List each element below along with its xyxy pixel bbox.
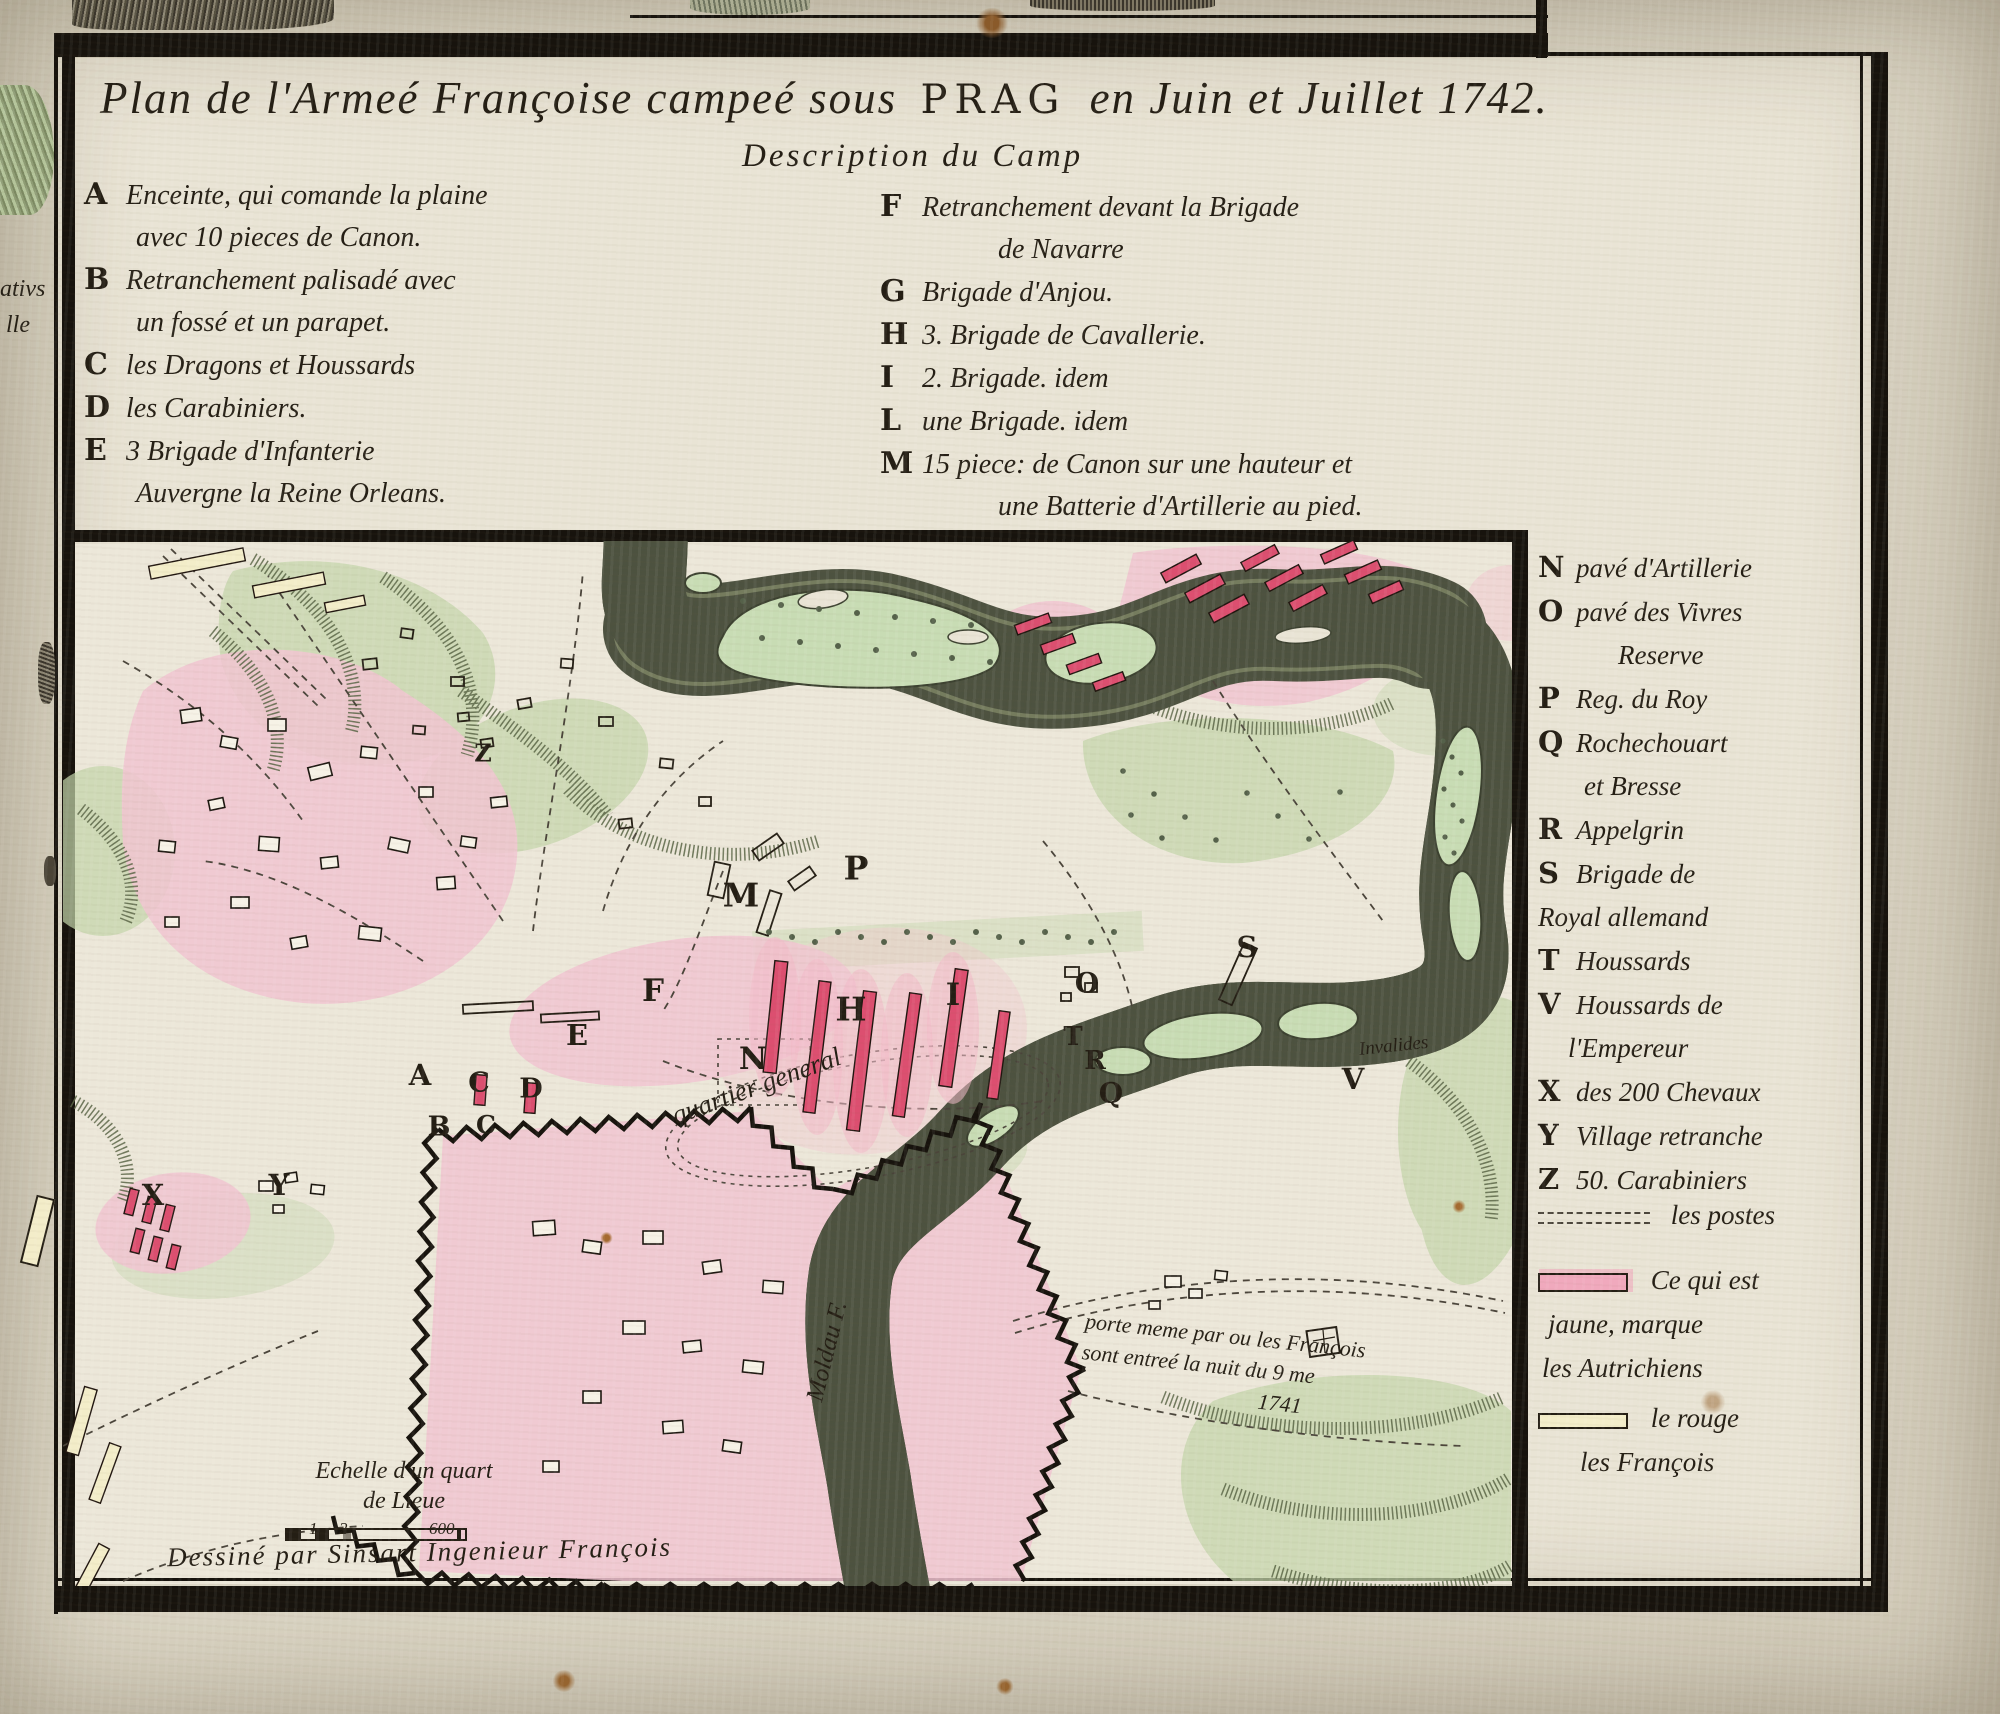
map-marker-S: S (1237, 930, 1258, 964)
map-marker-V: V (1342, 1062, 1365, 1096)
side-legend-entry-X: Xdes 200 Chevaux (1538, 1070, 1878, 1114)
legend-entry-G: GBrigade d'Anjou. (880, 271, 1820, 314)
legend-text: et Bresse (1584, 765, 1878, 808)
map-marker-D: D (519, 1074, 542, 1105)
legend-key: S (1538, 852, 1576, 895)
dashed-line-symbol (1538, 1212, 1650, 1224)
legend-text: une Batterie d'Artillerie au pied. (998, 486, 1820, 528)
legend-key: V (1538, 983, 1576, 1026)
legend-text: Rochechouart (1576, 728, 1727, 758)
french-line: le rouge (1651, 1403, 1739, 1433)
plate-border-left-outer (54, 33, 58, 1614)
legend-text: Houssards (1576, 946, 1691, 976)
austrians-legend: Ce qui est jaune, marque les Autrichiens (1538, 1258, 1759, 1390)
postes-label: les postes (1671, 1200, 1775, 1230)
map-label-invalides: Invalides (1358, 1032, 1430, 1061)
legend-entry-H: H3. Brigade de Cavallerie. (880, 314, 1820, 357)
title-suffix: en Juin et Juillet 1742. (1090, 73, 1549, 123)
legend-column-left: AEnceinte, qui comande la plaineavec 10 … (84, 174, 764, 515)
legend-text: pavé des Vivres (1576, 597, 1742, 627)
legend-key: H (880, 314, 922, 356)
legend-text: une Brigade. idem (922, 406, 1128, 437)
legend-key: R (1538, 808, 1576, 851)
map-marker-B: B (428, 1112, 451, 1143)
map-marker-Q: Q (1099, 1077, 1123, 1110)
legend-key: Q (1538, 721, 1576, 764)
legend-key: N (1538, 546, 1576, 589)
map-marker-I: I (946, 977, 961, 1013)
yellow-bar-symbol (1538, 1413, 1628, 1429)
map-marker-C: C (468, 1068, 490, 1099)
legend-entry-E: E3 Brigade d'InfanterieAuvergne la Reine… (84, 430, 764, 515)
left-margin-text-fragment: ativs (0, 276, 45, 303)
legend-entry-D: Dles Carabiniers. (84, 387, 764, 430)
legend-text: Reg. du Roy (1576, 684, 1707, 714)
map-frame-right (1512, 530, 1528, 1586)
legend-entry-M: M15 piece: de Canon sur une hauteur etun… (880, 443, 1820, 528)
side-legend-entry-T: THoussards (1538, 939, 1878, 983)
map-marker-M: M (723, 876, 760, 915)
pink-bar-symbol (1538, 1273, 1628, 1292)
legend-text: Enceinte, qui comande la plaine (126, 180, 488, 211)
upper-panel-green-fragment (690, 0, 810, 15)
engraved-map-sheet: Plan de l'Armeé Françoise campeé sous Pr… (0, 0, 2000, 1714)
map-marker-E: E (566, 1018, 588, 1052)
map-marker-O: O (1075, 967, 1099, 1000)
legend-key: E (84, 430, 126, 472)
legend-text: Retranchement palisadé avec (126, 265, 456, 296)
french-line: les François (1580, 1440, 1739, 1484)
legend-column-right: FRetranchement devant la Brigadede Navar… (880, 186, 1820, 528)
legend-text: un fossé et un parapet. (136, 302, 764, 344)
legend-text: avec 10 pieces de Canon. (136, 217, 764, 259)
legend-key: P (1538, 677, 1576, 720)
side-legend-entry-P: PReg. du Roy (1538, 677, 1878, 721)
legend-entry-L: Lune Brigade. idem (880, 400, 1820, 443)
map-label-moldau-river: Moldau F. (801, 1298, 853, 1404)
side-legend-entry-O: Opavé des VivresReserve (1538, 590, 1878, 677)
description-heading: Description du Camp (742, 138, 1083, 175)
legend-key: C (84, 344, 126, 386)
legend-key: Y (1538, 1114, 1576, 1157)
title-prefix: Plan de l'Armeé Françoise campeé sous (100, 73, 897, 123)
left-margin-dark-fragment (44, 856, 56, 886)
map-marker-Y: Y (269, 1168, 290, 1202)
legend-text: Reserve (1618, 634, 1878, 677)
side-legend-entry-Q: QRochechouartet Bresse (1538, 721, 1878, 808)
side-legend-entry-Y: YVillage retranche (1538, 1114, 1878, 1158)
legend-text: 3 Brigade d'Infanterie (126, 436, 375, 467)
side-legend: Npavé d'ArtillerieOpavé des VivresReserv… (1538, 546, 1878, 1586)
legend-entry-C: Cles Dragons et Houssards (84, 344, 764, 387)
austrians-line: jaune, marque (1548, 1302, 1759, 1346)
legend-text: de Navarre (998, 229, 1820, 271)
map-marker-C: C (476, 1111, 496, 1140)
legend-entry-F: FRetranchement devant la Brigadede Navar… (880, 186, 1820, 271)
austrians-line: Ce qui est (1651, 1265, 1759, 1295)
legend-text: 3. Brigade de Cavallerie. (922, 320, 1206, 351)
left-margin-yellow-bar (20, 1195, 55, 1268)
scale-block: Echelle d'un quart de Lieue 1 2 600 (259, 1456, 549, 1541)
legend-key: O (1538, 590, 1576, 633)
legend-text: Brigade de (1576, 859, 1695, 889)
legend-entry-A: AEnceinte, qui comande la plaineavec 10 … (84, 174, 764, 259)
french-legend: le rouge les François (1538, 1396, 1739, 1484)
legend-text: Houssards de (1576, 990, 1723, 1020)
side-legend-entry-V: VHoussards del'Empereur (1538, 983, 1878, 1070)
scale-title-line: Echelle d'un quart (259, 1456, 549, 1486)
legend-text: Royal allemand (1538, 896, 1878, 939)
legend-text: Retranchement devant la Brigade (922, 192, 1299, 223)
side-legend-entry-N: Npavé d'Artillerie (1538, 546, 1878, 590)
legend-key: F (880, 186, 922, 228)
map-marker-P: P (844, 849, 869, 888)
credit-signature: Dessiné par Sinsart Ingenieur François (167, 1532, 673, 1574)
legend-entry-B: BRetranchement palisadé avecun fossé et … (84, 259, 764, 344)
title-place-prag: Prag (910, 77, 1076, 123)
legend-text: Village retranche (1576, 1121, 1763, 1151)
legend-key: B (84, 259, 126, 301)
legend-key: M (880, 443, 922, 485)
legend-text: 50. Carabiniers (1576, 1165, 1747, 1195)
map-marker-H: H (835, 990, 866, 1029)
map-marker-Z: Z (474, 739, 492, 768)
austrians-line: les Autrichiens (1542, 1346, 1759, 1390)
legend-text: 2. Brigade. idem (922, 363, 1109, 394)
legend-text: des 200 Chevaux (1576, 1077, 1760, 1107)
foxing-stain (552, 1670, 576, 1692)
legend-key: X (1538, 1070, 1576, 1113)
legend-key: A (84, 174, 126, 216)
upper-panel-dark-fragment (1030, 0, 1215, 11)
left-margin-green-fragment (0, 85, 54, 215)
map-marker-R: R (1084, 1046, 1106, 1076)
legend-key: G (880, 271, 922, 313)
map-marker-T: T (1063, 1022, 1082, 1052)
legend-text: Auvergne la Reine Orleans. (136, 473, 764, 515)
left-margin-dark-fragment (38, 642, 55, 704)
map-marker-F: F (642, 973, 664, 1009)
legend-text: les Carabiniers. (126, 393, 306, 424)
legend-key: I (880, 357, 922, 399)
map-marker-A: A (409, 1058, 432, 1092)
plate-border-top (58, 33, 1548, 57)
legend-text: Brigade d'Anjou. (922, 277, 1113, 308)
side-legend-entry-R: RAppelgrin (1538, 808, 1878, 852)
postes-symbol-row: les postes (1538, 1194, 1775, 1237)
foxing-stain (996, 1678, 1014, 1695)
legend-key: D (84, 387, 126, 429)
map-title: Plan de l'Armeé Françoise campeé sous Pr… (100, 72, 1549, 124)
plate-border-top-right (1548, 52, 1888, 56)
upper-panel-engraving-fragment (72, 0, 334, 30)
legend-key: T (1538, 939, 1576, 982)
map-overlay: ZMPFENHIOSACDBCTRQVXYquartier generalMol… (63, 541, 1512, 1586)
legend-entry-I: I2. Brigade. idem (880, 357, 1820, 400)
porte-note: porte meme par ou les François sont entr… (1077, 1305, 1504, 1441)
scale-title-line: de Lieue (259, 1486, 549, 1516)
left-margin-text-fragment: lle (6, 312, 30, 339)
legend-text: pavé d'Artillerie (1576, 553, 1752, 583)
legend-key: L (880, 400, 922, 442)
plate-border-bottom (54, 1586, 1888, 1612)
legend-text: 15 piece: de Canon sur une hauteur et (922, 449, 1352, 480)
legend-text: les Dragons et Houssards (126, 350, 415, 381)
upper-panel-rule (630, 15, 1548, 18)
side-legend-entry-S: SBrigade deRoyal allemand (1538, 852, 1878, 939)
legend-text: l'Empereur (1568, 1027, 1878, 1070)
legend-text: Appelgrin (1576, 815, 1684, 845)
map-marker-X: X (142, 1178, 165, 1212)
